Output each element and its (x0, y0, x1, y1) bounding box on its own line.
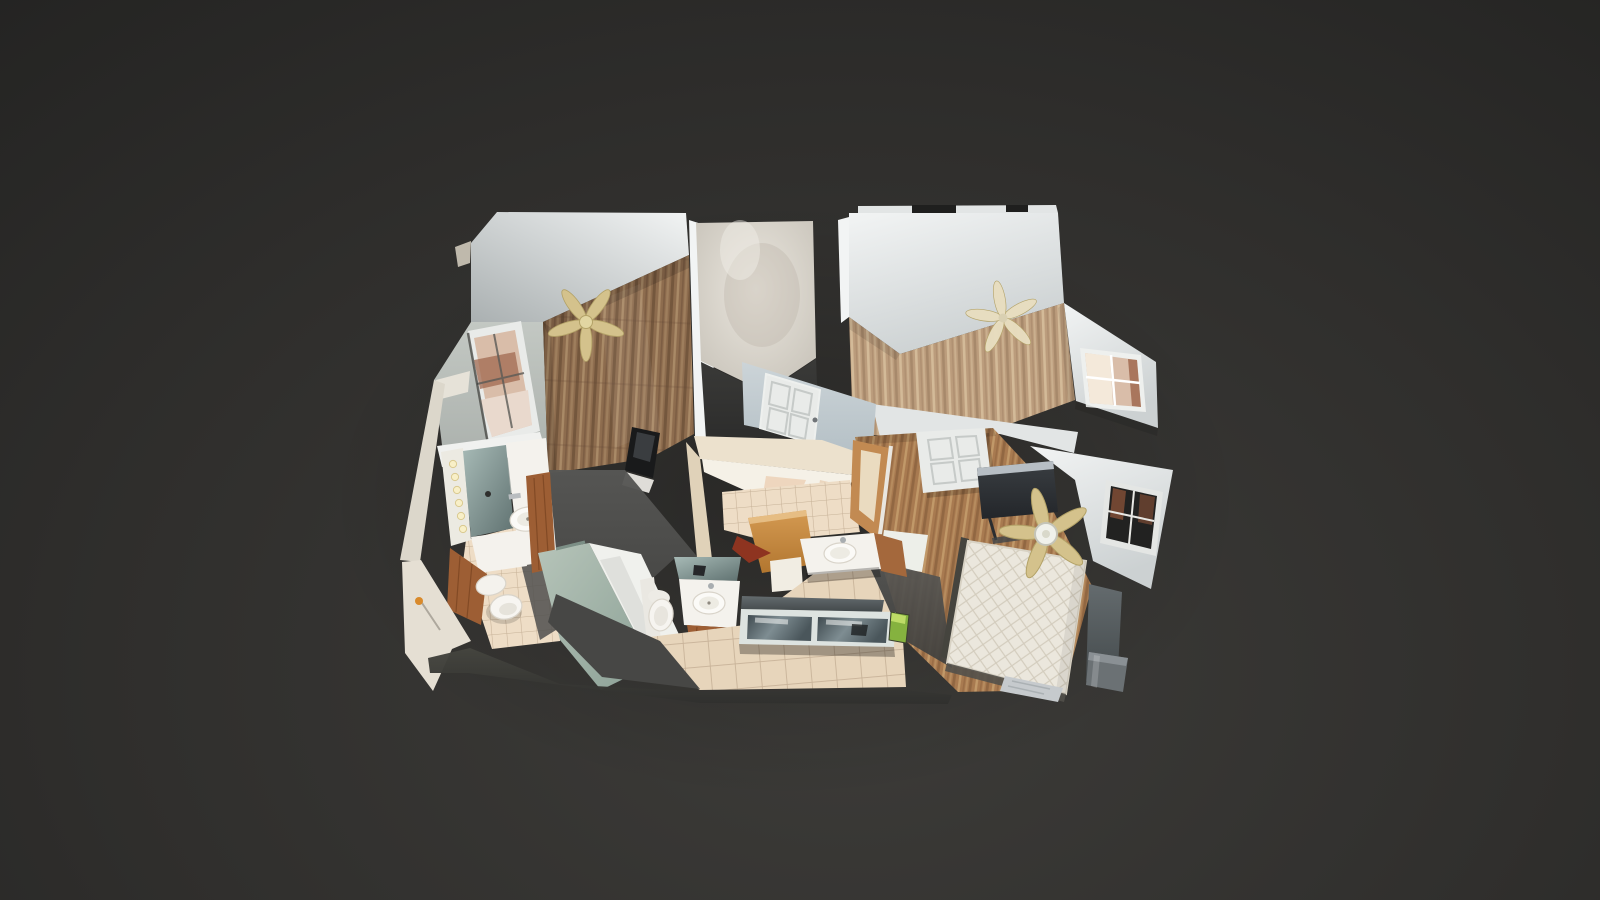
window (1100, 480, 1163, 556)
reflection-object (851, 624, 868, 636)
wall-notch (912, 205, 956, 213)
viewer-background[interactable] (0, 0, 1600, 900)
dollhouse-3d-view[interactable] (0, 0, 1600, 900)
green-item (889, 612, 909, 643)
faucet (840, 537, 846, 543)
faucet (708, 583, 714, 589)
wall-notch (1006, 205, 1028, 212)
mirrored-counter (739, 596, 896, 657)
wall-fragment (455, 241, 471, 267)
orange-fixture-dot (415, 597, 423, 605)
kitchen-sink (800, 533, 881, 583)
mirror (463, 445, 514, 537)
vanity-mirror (674, 557, 741, 581)
door-knob (813, 418, 818, 423)
trash-can (1086, 652, 1128, 692)
marble-swirl (720, 220, 760, 280)
vanity-counter (471, 530, 527, 573)
